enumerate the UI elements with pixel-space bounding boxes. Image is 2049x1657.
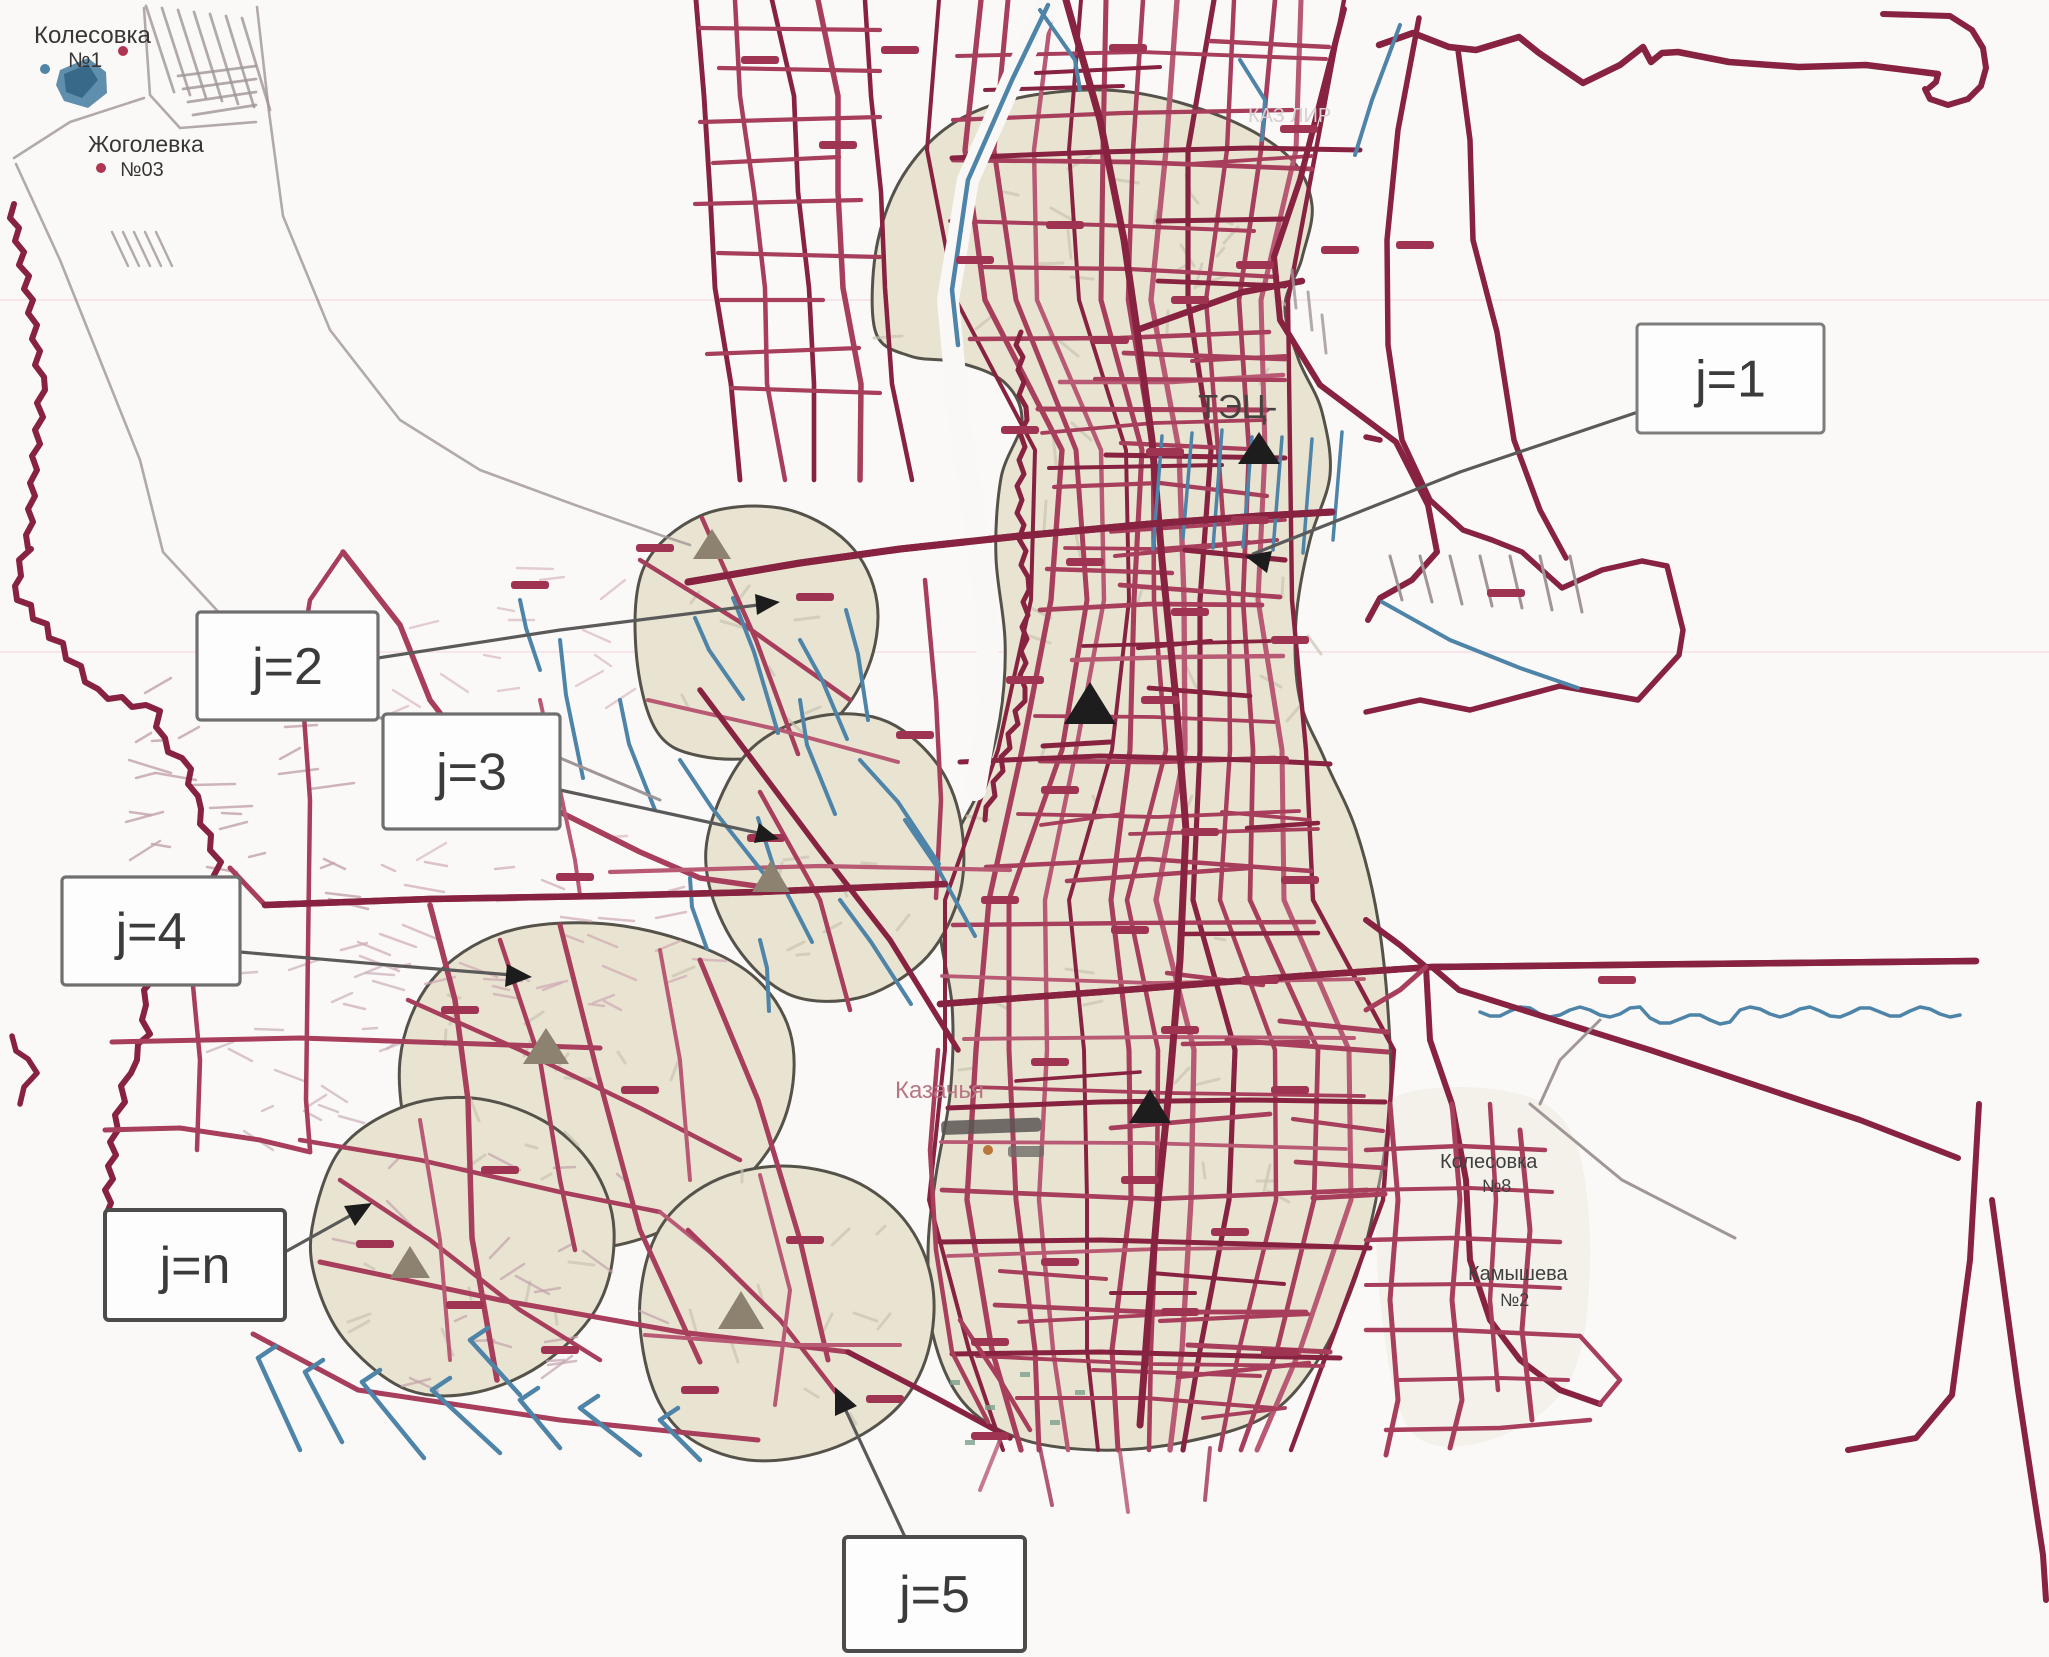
svg-text:Казачья: Казачья xyxy=(895,1077,984,1104)
svg-text:j=3: j=3 xyxy=(434,744,507,802)
svg-text:ТЭЦ-: ТЭЦ- xyxy=(1198,388,1277,425)
svg-text:j=2: j=2 xyxy=(250,638,323,696)
svg-text:Жоголевка: Жоголевка xyxy=(88,131,204,157)
svg-text:j=5: j=5 xyxy=(897,1566,970,1624)
svg-text:j=n: j=n xyxy=(158,1237,231,1295)
svg-text:№8: №8 xyxy=(1482,1176,1511,1196)
svg-text:Колесовка: Колесовка xyxy=(34,22,152,49)
svg-text:j=1: j=1 xyxy=(1693,351,1766,409)
svg-text:№03: №03 xyxy=(120,159,164,181)
svg-text:№2: №2 xyxy=(1500,1290,1529,1310)
svg-text:Колесовка: Колесовка xyxy=(1440,1151,1538,1173)
svg-text:j=4: j=4 xyxy=(114,903,187,961)
svg-text:Камышева: Камышева xyxy=(1468,1263,1568,1285)
svg-text:№1: №1 xyxy=(68,49,102,72)
svg-text:КАЗ ЛИР: КАЗ ЛИР xyxy=(1248,105,1331,127)
